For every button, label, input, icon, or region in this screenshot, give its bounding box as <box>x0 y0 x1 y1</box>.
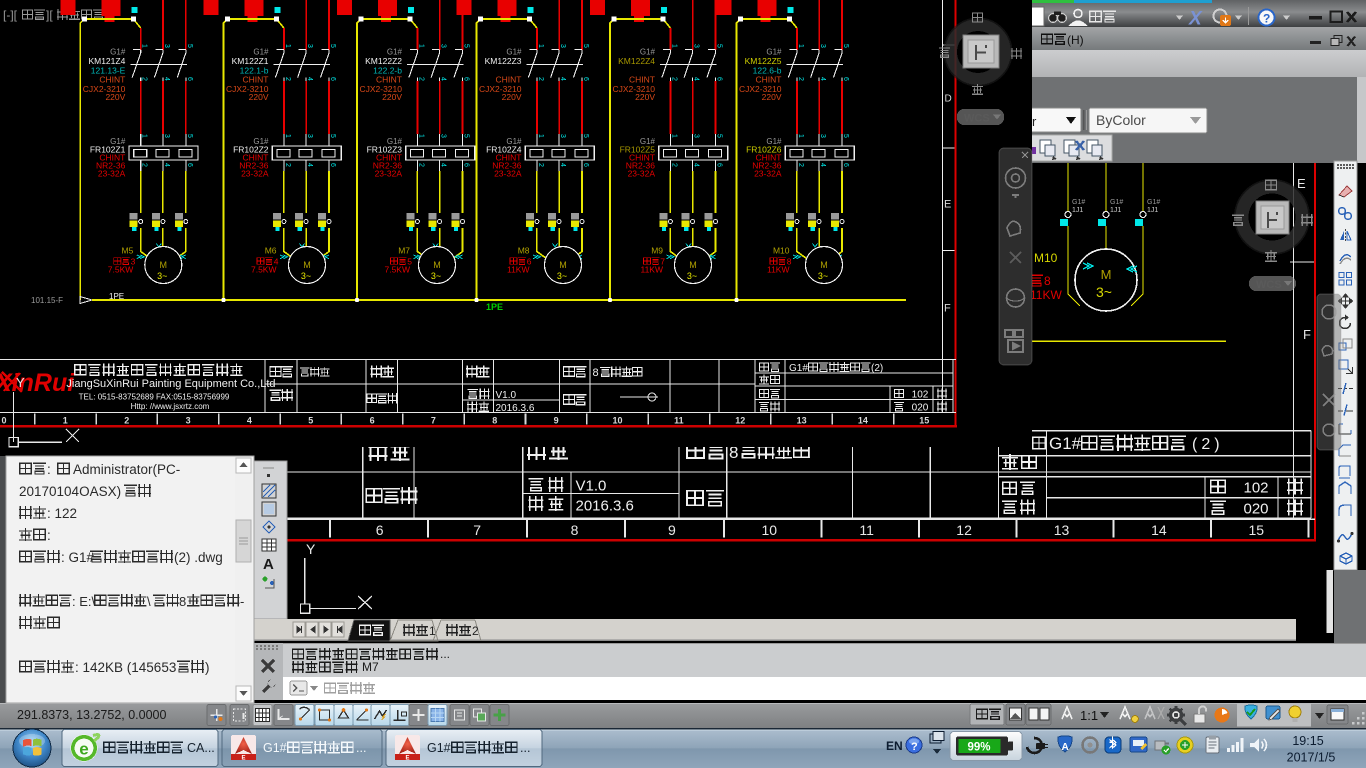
svg-text:6: 6 <box>463 163 470 167</box>
svg-text:M: M <box>689 260 697 270</box>
svg-text:G1#: G1# <box>1072 199 1085 206</box>
svg-text:3: 3 <box>819 134 826 138</box>
svg-text:4: 4 <box>163 77 170 81</box>
svg-text:23-32A: 23-32A <box>494 169 522 179</box>
svg-text:: 142KB (145653: : 142KB (145653 <box>75 660 176 675</box>
svg-text:5: 5 <box>329 134 336 138</box>
svg-text:6: 6 <box>329 77 336 81</box>
svg-text:2: 2 <box>797 163 804 167</box>
svg-text:3~: 3~ <box>431 271 441 281</box>
svg-text:1J1: 1J1 <box>1072 207 1083 214</box>
svg-text:4: 4 <box>693 163 700 167</box>
svg-text:): ) <box>205 660 210 675</box>
svg-text:6: 6 <box>716 163 723 167</box>
svg-text:M10: M10 <box>1034 251 1058 265</box>
svg-text:Y: Y <box>16 375 25 390</box>
svg-text:6: 6 <box>716 77 723 81</box>
svg-text:14: 14 <box>858 416 868 426</box>
svg-text:102: 102 <box>912 390 929 401</box>
svg-text:3: 3 <box>306 44 313 48</box>
svg-text:020: 020 <box>912 403 929 414</box>
svg-text:e: e <box>79 740 88 759</box>
svg-text:101.15-F: 101.15-F <box>31 296 63 305</box>
svg-text:WCS: WCS <box>1256 279 1282 291</box>
svg-text:E: E <box>405 756 409 762</box>
svg-text:6: 6 <box>842 77 849 81</box>
svg-text:3~: 3~ <box>1096 284 1112 300</box>
svg-text:3: 3 <box>559 44 566 48</box>
svg-text::: : <box>47 462 51 477</box>
svg-text:5: 5 <box>582 44 589 48</box>
svg-text:EN: EN <box>886 739 903 753</box>
svg-text:12: 12 <box>956 522 972 538</box>
svg-text:r: r <box>1032 114 1037 129</box>
svg-text:10: 10 <box>762 522 778 538</box>
svg-text:8: 8 <box>1044 274 1051 288</box>
svg-text:3~: 3~ <box>157 271 167 281</box>
svg-text:11KW: 11KW <box>1030 288 1062 302</box>
svg-text:-: - <box>240 594 244 609</box>
svg-text:E: E <box>1297 176 1306 191</box>
svg-text:0: 0 <box>1 416 6 426</box>
svg-text:4: 4 <box>440 163 447 167</box>
svg-text:M7: M7 <box>362 660 379 674</box>
svg-text:Administrator(PC-: Administrator(PC- <box>73 462 180 477</box>
svg-text:7.5KW: 7.5KW <box>108 265 134 275</box>
svg-text:2: 2 <box>141 77 148 81</box>
svg-text:2: 2 <box>417 77 424 81</box>
svg-text:3: 3 <box>186 416 191 426</box>
svg-text:220V: 220V <box>762 92 782 102</box>
svg-text:1J1: 1J1 <box>1110 207 1121 214</box>
svg-text:1: 1 <box>537 44 544 48</box>
svg-text:12: 12 <box>735 416 745 426</box>
svg-text:2017/1/5: 2017/1/5 <box>1287 751 1336 765</box>
svg-text:ByColor: ByColor <box>1096 112 1146 128</box>
svg-text:6: 6 <box>376 522 384 538</box>
svg-text:6: 6 <box>329 163 336 167</box>
svg-text:G1#: G1# <box>263 741 287 755</box>
svg-text:11KW: 11KW <box>507 265 530 275</box>
svg-text:M: M <box>433 260 441 270</box>
svg-text:][: ][ <box>46 8 53 22</box>
svg-text:3~: 3~ <box>557 271 567 281</box>
svg-text:4: 4 <box>306 163 313 167</box>
svg-text:1: 1 <box>797 44 804 48</box>
svg-text:F: F <box>944 303 951 315</box>
svg-text:M: M <box>1101 267 1112 282</box>
svg-text:1PE: 1PE <box>109 292 124 301</box>
svg-text:4: 4 <box>559 163 566 167</box>
svg-text:5: 5 <box>463 134 470 138</box>
svg-text:E: E <box>944 199 951 211</box>
svg-text:TEL: 0515-83752689 FAX:0515-83: TEL: 0515-83752689 FAX:0515-83756999 <box>79 393 230 402</box>
svg-text:\: \ <box>147 594 151 609</box>
svg-text:F: F <box>1303 327 1311 342</box>
svg-text:291.8373, 13.2752, 0.0000: 291.8373, 13.2752, 0.0000 <box>17 708 166 722</box>
svg-text:1: 1 <box>284 44 291 48</box>
svg-text:1: 1 <box>670 134 677 138</box>
svg-text:[-][: [-][ <box>3 8 18 22</box>
svg-text:2: 2 <box>670 77 677 81</box>
svg-text:5: 5 <box>186 44 193 48</box>
svg-text:: 122: : 122 <box>47 506 77 521</box>
svg-text:6: 6 <box>370 416 375 426</box>
svg-text:11: 11 <box>859 522 874 538</box>
svg-text:4: 4 <box>819 77 826 81</box>
svg-text:2: 2 <box>537 163 544 167</box>
svg-text:3~: 3~ <box>818 271 828 281</box>
svg-text:G1#: G1# <box>427 741 451 755</box>
svg-text:3: 3 <box>163 44 170 48</box>
svg-text:23-32A: 23-32A <box>754 169 782 179</box>
svg-text:V1.0: V1.0 <box>496 390 517 401</box>
svg-text:X: X <box>1188 9 1203 30</box>
svg-text:4: 4 <box>819 163 826 167</box>
svg-text:Y: Y <box>306 541 316 557</box>
svg-text:14: 14 <box>1151 522 1167 538</box>
svg-text:M8: M8 <box>518 246 530 256</box>
svg-text:4: 4 <box>306 77 313 81</box>
svg-text:1: 1 <box>417 134 424 138</box>
svg-text:5: 5 <box>842 134 849 138</box>
svg-text:5: 5 <box>463 44 470 48</box>
svg-text:1: 1 <box>670 44 677 48</box>
svg-text:4: 4 <box>440 77 447 81</box>
svg-text:220V: 220V <box>105 92 125 102</box>
svg-text:G1#: G1# <box>789 363 808 374</box>
svg-text:3: 3 <box>440 44 447 48</box>
svg-text:4: 4 <box>247 416 252 426</box>
svg-text:3: 3 <box>559 134 566 138</box>
svg-text:2016.3.6: 2016.3.6 <box>576 498 634 515</box>
svg-text:M: M <box>160 260 168 270</box>
svg-text:...: ... <box>356 741 366 755</box>
svg-text:G1#: G1# <box>1049 434 1082 453</box>
svg-text:Http: //www.jsxrtz.com: Http: //www.jsxrtz.com <box>131 402 210 411</box>
svg-text:6: 6 <box>186 163 193 167</box>
svg-text:1: 1 <box>284 134 291 138</box>
svg-text:220V: 220V <box>249 92 269 102</box>
svg-text:: E:\: : E:\ <box>72 594 96 609</box>
svg-text:1: 1 <box>141 134 148 138</box>
svg-text:2: 2 <box>537 77 544 81</box>
svg-text:2: 2 <box>797 77 804 81</box>
svg-text::: : <box>47 528 51 543</box>
svg-text:...: ... <box>440 647 450 661</box>
svg-text:1J1: 1J1 <box>1147 207 1158 214</box>
svg-text:V1.0: V1.0 <box>576 478 607 495</box>
svg-text:5: 5 <box>329 44 336 48</box>
svg-text:6: 6 <box>842 163 849 167</box>
svg-text:5: 5 <box>842 44 849 48</box>
svg-text:6: 6 <box>186 77 193 81</box>
svg-text:4: 4 <box>693 77 700 81</box>
svg-text:20170104OASX): 20170104OASX) <box>19 484 121 499</box>
svg-text:: G1#: : G1# <box>61 550 95 565</box>
svg-text:3: 3 <box>306 134 313 138</box>
svg-text:23-32A: 23-32A <box>98 169 126 179</box>
svg-text:M9: M9 <box>651 246 663 256</box>
svg-text:23-32A: 23-32A <box>241 169 269 179</box>
svg-text:A: A <box>1062 742 1069 753</box>
svg-text:?: ? <box>1263 12 1270 26</box>
svg-text:8: 8 <box>179 594 186 609</box>
svg-text:M: M <box>303 260 311 270</box>
svg-text:220V: 220V <box>502 92 522 102</box>
svg-text:2: 2 <box>284 163 291 167</box>
svg-text:11: 11 <box>674 416 684 426</box>
svg-text:1: 1 <box>63 416 68 426</box>
svg-text:M6: M6 <box>265 246 277 256</box>
svg-text:9: 9 <box>668 522 676 538</box>
svg-text:3~: 3~ <box>301 271 311 281</box>
svg-text:102: 102 <box>1243 480 1268 497</box>
svg-text:KM122Z3: KM122Z3 <box>485 56 522 66</box>
svg-text:2: 2 <box>124 416 129 426</box>
svg-text:G1#: G1# <box>1147 199 1160 206</box>
svg-text:15: 15 <box>919 416 929 426</box>
svg-text:1: 1 <box>797 134 804 138</box>
svg-text:020: 020 <box>1243 501 1268 518</box>
svg-text:M: M <box>559 260 567 270</box>
svg-text:M10: M10 <box>773 246 790 256</box>
svg-text:(2) .dwg: (2) .dwg <box>174 550 223 565</box>
svg-text:1PE: 1PE <box>486 302 503 312</box>
svg-text:3: 3 <box>819 44 826 48</box>
svg-text:KM122Z4: KM122Z4 <box>618 56 655 66</box>
svg-text:(2): (2) <box>1192 436 1224 453</box>
svg-text:13: 13 <box>797 416 807 426</box>
svg-text:13: 13 <box>1054 522 1070 538</box>
svg-text:99%: 99% <box>967 742 990 754</box>
svg-text:...: ... <box>520 741 530 755</box>
svg-text:3~: 3~ <box>687 271 697 281</box>
svg-text:M5: M5 <box>121 246 133 256</box>
svg-text:4: 4 <box>559 77 566 81</box>
svg-text:5: 5 <box>308 416 313 426</box>
svg-text:220V: 220V <box>382 92 402 102</box>
svg-text:7: 7 <box>473 522 481 538</box>
svg-text:8: 8 <box>571 522 579 538</box>
svg-text:4: 4 <box>163 163 170 167</box>
svg-text:7.5KW: 7.5KW <box>384 265 410 275</box>
svg-text:3: 3 <box>163 134 170 138</box>
svg-text:3: 3 <box>693 134 700 138</box>
svg-text:220V: 220V <box>635 92 655 102</box>
svg-text:23-32A: 23-32A <box>628 169 656 179</box>
svg-text:2: 2 <box>670 163 677 167</box>
svg-text:8: 8 <box>492 416 497 426</box>
svg-text:M7: M7 <box>398 246 410 256</box>
svg-text:6: 6 <box>582 163 589 167</box>
svg-text:6: 6 <box>582 77 589 81</box>
svg-text:JiangSuXinRui Painting Equipme: JiangSuXinRui Painting Equipment Co.,Ltd <box>66 378 275 390</box>
svg-text:15: 15 <box>1249 522 1265 538</box>
svg-text:E: E <box>241 756 245 762</box>
svg-text:1: 1 <box>141 44 148 48</box>
svg-text:19:15: 19:15 <box>1292 734 1323 748</box>
svg-text:1: 1 <box>417 44 424 48</box>
svg-text:5: 5 <box>582 134 589 138</box>
svg-text:23-32A: 23-32A <box>375 169 403 179</box>
svg-text:CA...: CA... <box>187 741 215 755</box>
svg-text:9: 9 <box>554 416 559 426</box>
svg-text:G1#: G1# <box>1110 199 1123 206</box>
svg-text:2: 2 <box>141 163 148 167</box>
svg-text:2: 2 <box>284 77 291 81</box>
svg-text:8: 8 <box>593 367 599 379</box>
svg-text:1: 1 <box>537 134 544 138</box>
svg-text:1:1: 1:1 <box>1080 708 1098 723</box>
svg-text:5: 5 <box>716 134 723 138</box>
svg-text:7.5KW: 7.5KW <box>251 265 277 275</box>
svg-text:WCS: WCS <box>964 113 990 125</box>
svg-text:2: 2 <box>472 624 479 638</box>
svg-text:M: M <box>820 260 828 270</box>
svg-text:11KW: 11KW <box>767 265 790 275</box>
svg-text:10: 10 <box>612 416 622 426</box>
svg-text:5: 5 <box>186 134 193 138</box>
svg-text:?: ? <box>911 741 918 753</box>
svg-text:2016.3.6: 2016.3.6 <box>496 403 535 414</box>
svg-text:6: 6 <box>463 77 470 81</box>
svg-text:D: D <box>945 94 952 105</box>
svg-text:(2): (2) <box>871 363 883 374</box>
svg-text:7: 7 <box>431 416 436 426</box>
svg-text:A: A <box>263 556 274 573</box>
svg-text:5: 5 <box>716 44 723 48</box>
svg-text:11KW: 11KW <box>640 265 663 275</box>
svg-text:3: 3 <box>693 44 700 48</box>
svg-text:2: 2 <box>417 163 424 167</box>
svg-text:(H): (H) <box>1067 33 1084 47</box>
svg-text:3: 3 <box>440 134 447 138</box>
